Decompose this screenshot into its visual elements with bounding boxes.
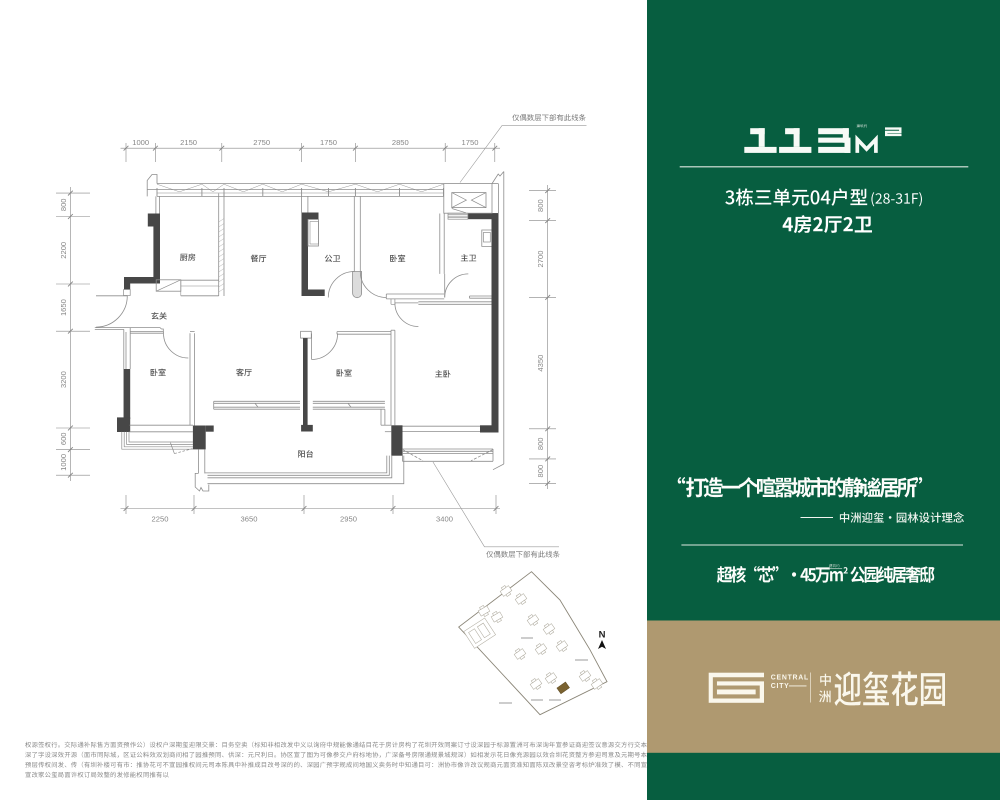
svg-text:2850: 2850 (392, 138, 409, 147)
svg-text:600: 600 (59, 432, 68, 445)
svg-text:3400: 3400 (436, 515, 453, 524)
svg-text:1650: 1650 (59, 299, 68, 316)
svg-text:1750: 1750 (320, 138, 337, 147)
svg-text:2150: 2150 (180, 138, 197, 147)
svg-text:2250: 2250 (152, 515, 169, 524)
svg-text:CITY: CITY (771, 683, 790, 690)
svg-text:N: N (599, 630, 606, 641)
svg-text:2700: 2700 (536, 251, 545, 268)
svg-text:1000: 1000 (59, 454, 68, 471)
svg-text:1750: 1750 (462, 138, 479, 147)
svg-text:1000: 1000 (132, 138, 149, 147)
svg-text:3650: 3650 (241, 515, 258, 524)
svg-text:800: 800 (59, 198, 68, 211)
svg-text:2750: 2750 (253, 138, 270, 147)
svg-text:4350: 4350 (536, 355, 545, 372)
svg-text:800: 800 (536, 465, 545, 478)
svg-text:800: 800 (536, 199, 545, 212)
svg-text:3200: 3200 (59, 371, 68, 388)
svg-text:800: 800 (536, 437, 545, 450)
svg-text:CENTRAL: CENTRAL (771, 675, 809, 682)
svg-text:2200: 2200 (59, 242, 68, 259)
svg-text:2950: 2950 (340, 515, 357, 524)
